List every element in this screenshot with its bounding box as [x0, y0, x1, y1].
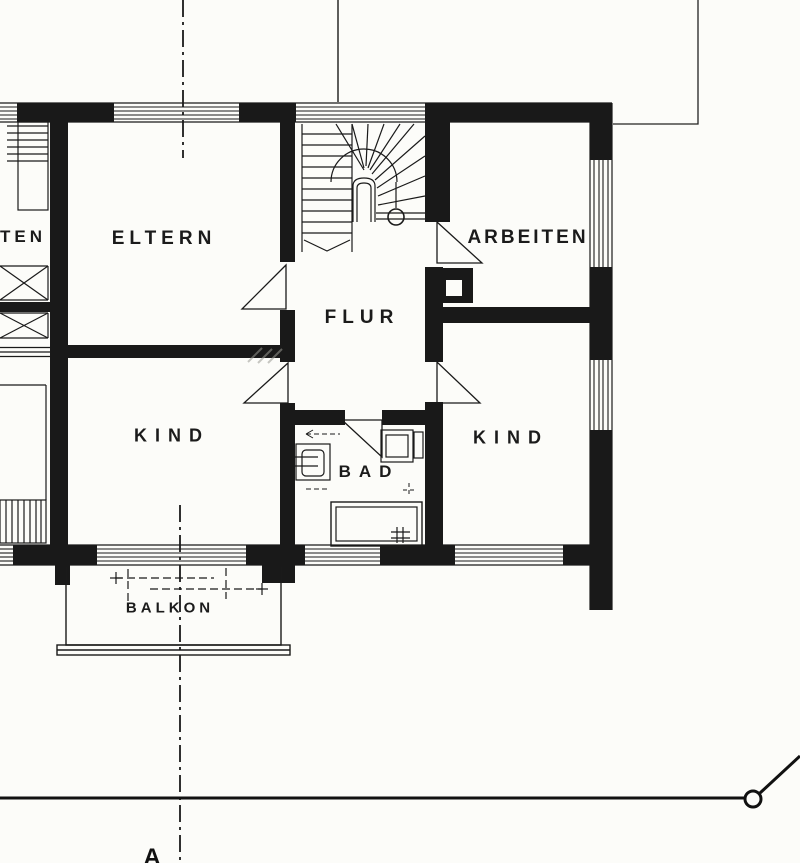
stair-post-circle — [388, 209, 404, 225]
section-marker-a: A — [143, 844, 160, 863]
door-swing-eltern — [242, 265, 286, 309]
room-label-neighbor-partial: TEN — [0, 227, 46, 247]
survey-point-circle — [745, 791, 761, 807]
neighbor-hatched-strip — [0, 500, 46, 543]
neighbor-unit-fragments — [0, 122, 50, 543]
room-label-eltern: ELTERN — [112, 228, 217, 250]
room-label-bad: BAD — [339, 462, 400, 482]
washbasin-icon — [381, 430, 423, 462]
door-swing-kind-right — [437, 362, 480, 403]
neighbor-wall-band — [0, 302, 50, 312]
door-swing-kind-left — [244, 363, 288, 403]
room-label-flur: FLUR — [325, 307, 400, 329]
neighbor-wardrobe — [18, 122, 48, 210]
boundary-line-top-right — [613, 0, 698, 124]
room-label-kind-left: KIND — [134, 426, 210, 447]
bathroom-fixtures — [288, 430, 423, 546]
terrain-line — [0, 756, 800, 807]
room-label-kind-right: KIND — [473, 428, 549, 449]
room-label-arbeiten: ARBEITEN — [467, 227, 588, 249]
door-swing-bad — [342, 420, 382, 457]
room-label-balkon: BALKON — [126, 600, 214, 617]
balcony-tick-marks — [110, 572, 268, 595]
balcony-hidden-lines — [115, 568, 262, 602]
party-wall — [50, 103, 68, 565]
chimney-icon — [427, 268, 473, 303]
floor-plan-canvas: ELTERN ARBEITEN FLUR KIND KIND BAD BALKO… — [0, 0, 800, 863]
interior-walls — [55, 103, 612, 585]
bathtub-icon — [331, 502, 422, 546]
staircase-icon — [302, 124, 425, 252]
door-swings — [242, 222, 482, 457]
floor-plan-drawing — [0, 0, 800, 863]
balcony-railing-icon — [57, 645, 290, 655]
